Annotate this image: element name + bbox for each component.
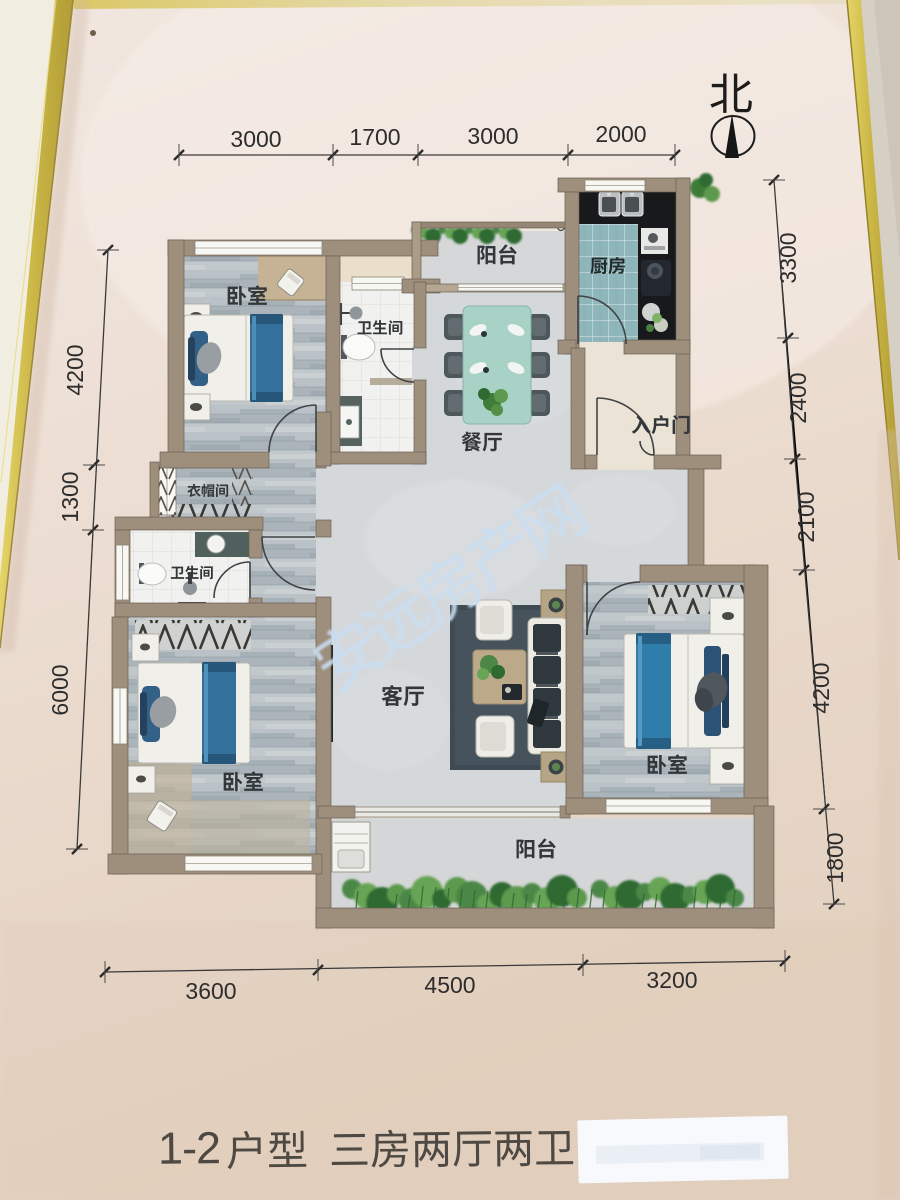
svg-text:1-2: 1-2: [158, 1122, 221, 1174]
svg-text:3600: 3600: [185, 978, 236, 1004]
svg-text:3200: 3200: [646, 967, 697, 993]
svg-text:3300: 3300: [775, 232, 801, 283]
svg-text:4200: 4200: [62, 344, 88, 395]
svg-text:6000: 6000: [47, 664, 73, 715]
svg-text:3000: 3000: [230, 126, 281, 152]
svg-text:3000: 3000: [467, 123, 518, 149]
svg-text:1700: 1700: [349, 124, 400, 150]
svg-text:2400: 2400: [785, 372, 811, 423]
svg-text:2000: 2000: [595, 121, 646, 147]
svg-text:1800: 1800: [822, 832, 848, 883]
svg-text:4200: 4200: [808, 662, 834, 713]
svg-text:1300: 1300: [57, 471, 83, 522]
svg-text:2100: 2100: [793, 491, 819, 542]
svg-text:4500: 4500: [424, 972, 475, 998]
